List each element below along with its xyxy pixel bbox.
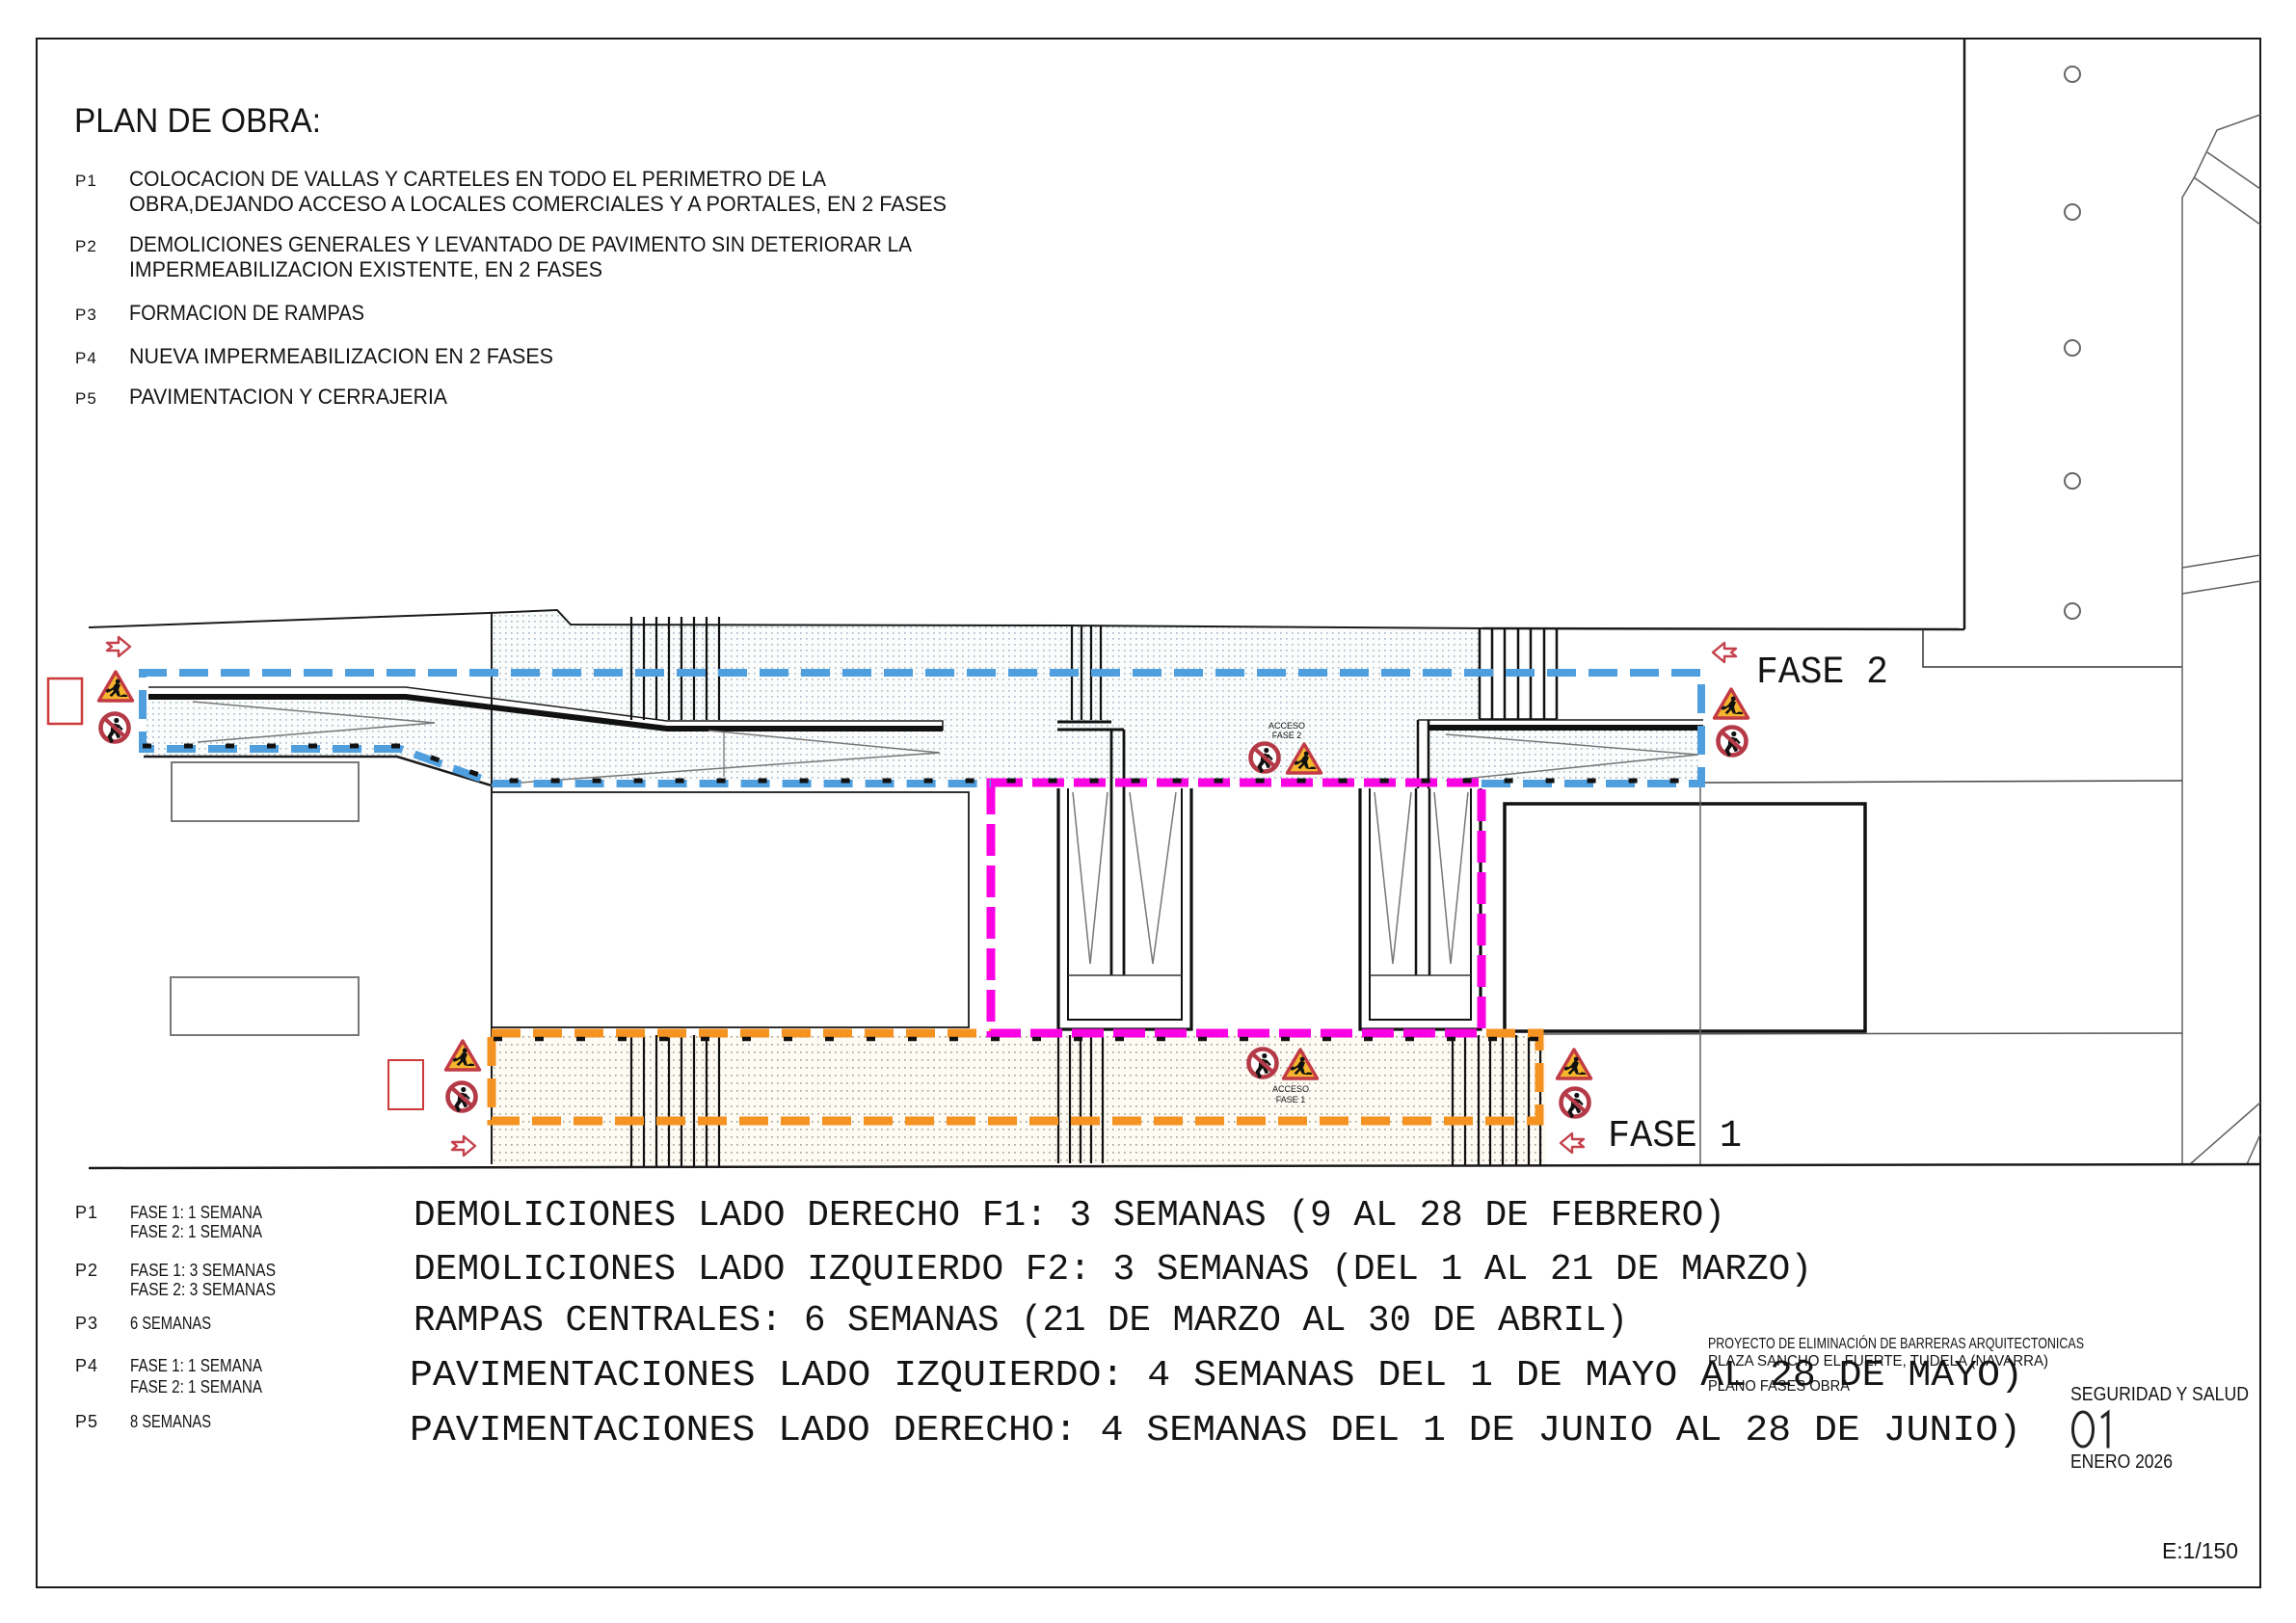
svg-text:COLOCACION DE VALLAS Y CARTELE: COLOCACION DE VALLAS Y CARTELES EN TODO … <box>129 167 826 191</box>
svg-text:FASE 1: FASE 1 <box>1276 1095 1306 1104</box>
svg-text:FASE 1: FASE 1 <box>1608 1115 1742 1158</box>
svg-text:FASE 2: FASE 2 <box>1272 731 1302 740</box>
svg-text:OBRA,DEJANDO ACCESO A LOCALES: OBRA,DEJANDO ACCESO A LOCALES COMERCIALE… <box>129 192 947 216</box>
svg-text:6 SEMANAS: 6 SEMANAS <box>130 1314 211 1333</box>
svg-text:SEGURIDAD Y SALUD: SEGURIDAD Y SALUD <box>2070 1384 2249 1405</box>
svg-text:PLANO FASES OBRA: PLANO FASES OBRA <box>1708 1378 1851 1395</box>
svg-text:P3: P3 <box>75 306 97 324</box>
svg-text:FASE 1: 3 SEMANAS: FASE 1: 3 SEMANAS <box>130 1261 276 1280</box>
svg-text:PAVIMENTACIONES LADO DERECHO:: PAVIMENTACIONES LADO DERECHO: 4 SEMANAS … <box>410 1410 2021 1451</box>
svg-text:P3: P3 <box>75 1314 98 1333</box>
svg-text:P5: P5 <box>75 1412 98 1431</box>
svg-text:PLAZA SANCHO EL FUERTE, TUDELA: PLAZA SANCHO EL FUERTE, TUDELA (NAVARRA) <box>1708 1353 2048 1370</box>
svg-text:DEMOLICIONES GENERALES Y LEVAN: DEMOLICIONES GENERALES Y LEVANTADO DE PA… <box>129 232 912 256</box>
svg-text:P2: P2 <box>75 1261 98 1280</box>
svg-text:PROYECTO DE ELIMINACIÓN DE BAR: PROYECTO DE ELIMINACIÓN DE BARRERAS ARQU… <box>1708 1336 2084 1352</box>
svg-text:8 SEMANAS: 8 SEMANAS <box>130 1412 211 1431</box>
svg-text:DEMOLICIONES LADO IZQUIERDO F2: DEMOLICIONES LADO IZQUIERDO F2: 3 SEMANA… <box>414 1249 1812 1290</box>
svg-text:FASE 2: 1 SEMANA: FASE 2: 1 SEMANA <box>130 1377 262 1397</box>
svg-text:ACCESO: ACCESO <box>1268 721 1305 731</box>
svg-text:FORMACION DE RAMPAS: FORMACION DE RAMPAS <box>129 301 364 325</box>
svg-text:E:1/150: E:1/150 <box>2162 1538 2238 1563</box>
svg-text:FASE 2: 3 SEMANAS: FASE 2: 3 SEMANAS <box>130 1280 276 1299</box>
svg-text:FASE 2: FASE 2 <box>1756 652 1888 695</box>
svg-text:NUEVA IMPERMEABILIZACION EN 2: NUEVA IMPERMEABILIZACION EN 2 FASES <box>129 344 553 368</box>
svg-text:P1: P1 <box>75 1203 98 1222</box>
svg-text:P4: P4 <box>75 349 97 367</box>
svg-text:P2: P2 <box>75 237 97 255</box>
svg-text:ENERO 2026: ENERO 2026 <box>2070 1451 2173 1473</box>
svg-text:PLAN DE OBRA:: PLAN DE OBRA: <box>74 102 321 140</box>
svg-text:FASE 1: 1 SEMANA: FASE 1: 1 SEMANA <box>130 1203 262 1222</box>
svg-text:RAMPAS CENTRALES: 6 SEMANAS (2: RAMPAS CENTRALES: 6 SEMANAS (21 DE MARZO… <box>414 1300 1628 1342</box>
svg-text:PAVIMENTACION Y CERRAJERIA: PAVIMENTACION Y CERRAJERIA <box>129 385 447 409</box>
svg-text:FASE 2: 1 SEMANA: FASE 2: 1 SEMANA <box>130 1222 262 1241</box>
svg-text:DEMOLICIONES LADO DERECHO F1:: DEMOLICIONES LADO DERECHO F1: 3 SEMANAS … <box>414 1195 1725 1237</box>
svg-text:FASE 1: 1 SEMANA: FASE 1: 1 SEMANA <box>130 1356 262 1375</box>
svg-text:ACCESO: ACCESO <box>1272 1084 1309 1094</box>
svg-text:P5: P5 <box>75 389 97 408</box>
svg-text:P4: P4 <box>75 1356 98 1375</box>
svg-text:P1: P1 <box>75 172 97 190</box>
svg-text:IMPERMEABILIZACION EXISTENTE,: IMPERMEABILIZACION EXISTENTE, EN 2 FASES <box>129 257 602 281</box>
